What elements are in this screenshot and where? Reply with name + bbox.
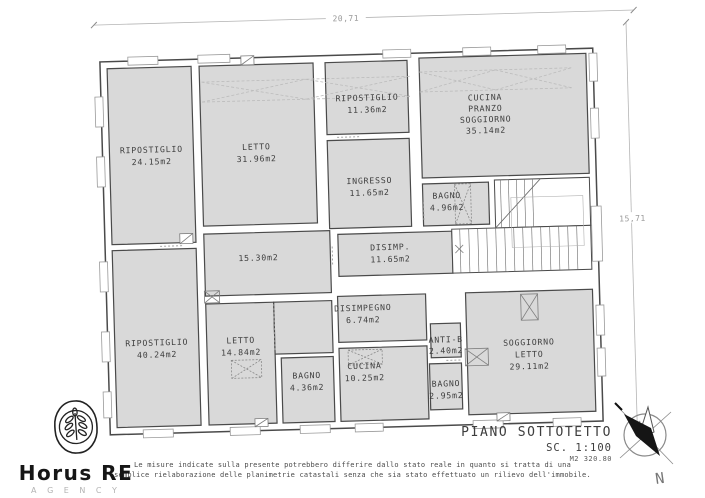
logo-name: Horus RE	[15, 463, 137, 483]
logo-subtitle: A G E N C Y	[15, 486, 137, 495]
branch-icon	[63, 407, 89, 441]
room-cucina	[339, 346, 429, 421]
label-anti-b: ANTI-B2.40m2	[428, 334, 463, 356]
room-ripostiglio-1	[107, 66, 196, 244]
title-block: PIANO SOTTOTETTO SC. 1:100 M2 320.80	[461, 425, 612, 463]
logo-emblem-icon	[50, 398, 102, 458]
label-corridoio: 15.30m2	[238, 252, 278, 263]
room-letto-2-nook	[274, 301, 333, 355]
page-title: PIANO SOTTOTETTO	[461, 425, 612, 440]
dimension-width-label: 20,71	[332, 14, 359, 24]
agency-logo: Horus RE A G E N C Y	[15, 398, 137, 495]
scale-label: SC. 1:100	[461, 442, 612, 454]
room-corridoio	[204, 231, 332, 296]
compass-north-label: N	[654, 469, 665, 488]
floor-plan-page: 20,71 15,71	[0, 0, 705, 498]
room-letto-2	[206, 302, 277, 425]
compass-rose-icon: N	[612, 398, 702, 494]
dimension-height-label: 15,71	[619, 214, 646, 224]
